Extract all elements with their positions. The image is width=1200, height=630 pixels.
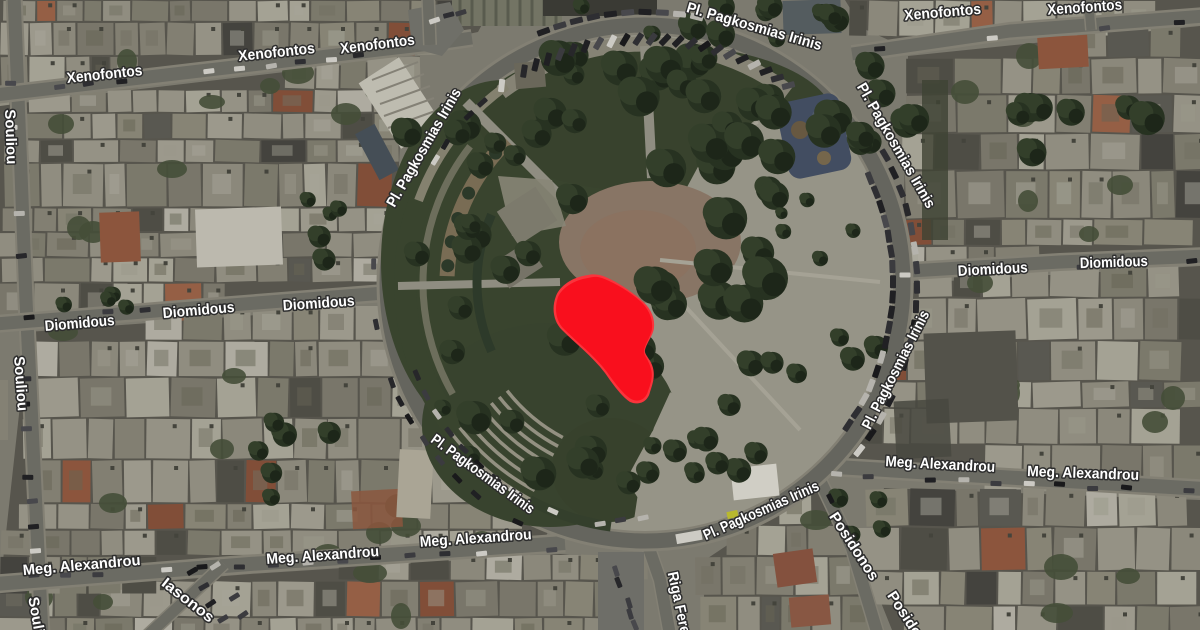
svg-text:Souliou: Souliou: [1, 109, 20, 165]
svg-text:Diomidous: Diomidous: [1080, 253, 1149, 272]
